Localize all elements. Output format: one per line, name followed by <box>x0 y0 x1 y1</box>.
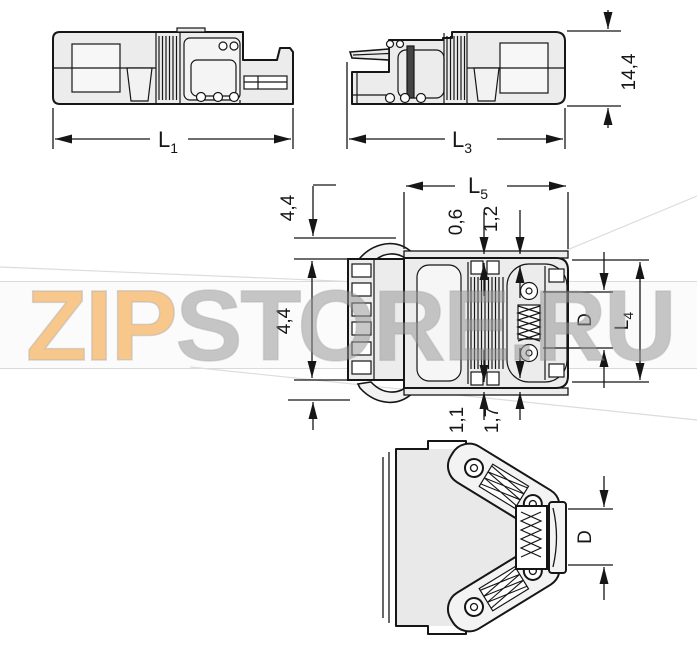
side-view-right: L3 14,4 <box>347 10 640 156</box>
dim-12-label: 1,2 <box>481 206 502 232</box>
bottom-view: D <box>383 437 613 639</box>
dim-l4-label: L4 <box>612 312 636 331</box>
side-view-left: L1 <box>53 28 293 156</box>
dim-d-top-view-label: D <box>575 313 596 327</box>
dim-11-label: 1,1 <box>447 407 468 433</box>
dimensional-drawing-page: L1 <box>0 0 697 650</box>
dim-06-label: 0,6 <box>446 209 467 235</box>
dim-17-label: 1,7 <box>482 407 503 433</box>
technical-drawing: L1 <box>0 0 697 650</box>
dim-l3-label: L3 <box>452 127 472 156</box>
port <box>516 502 566 573</box>
dim-44-bottom-label: 4,4 <box>274 307 295 334</box>
dim-l5-label: L5 <box>468 173 488 202</box>
dim-height <box>567 10 621 128</box>
dim-d-bottom-view-label: D <box>575 530 596 544</box>
dim-l1-label: L1 <box>158 127 178 156</box>
dim-height-label: 14,4 <box>619 53 640 90</box>
dim-44-top-label: 4,4 <box>278 194 299 221</box>
top-view: L5 0,6 1,2 1,1 1,7 <box>274 173 649 433</box>
